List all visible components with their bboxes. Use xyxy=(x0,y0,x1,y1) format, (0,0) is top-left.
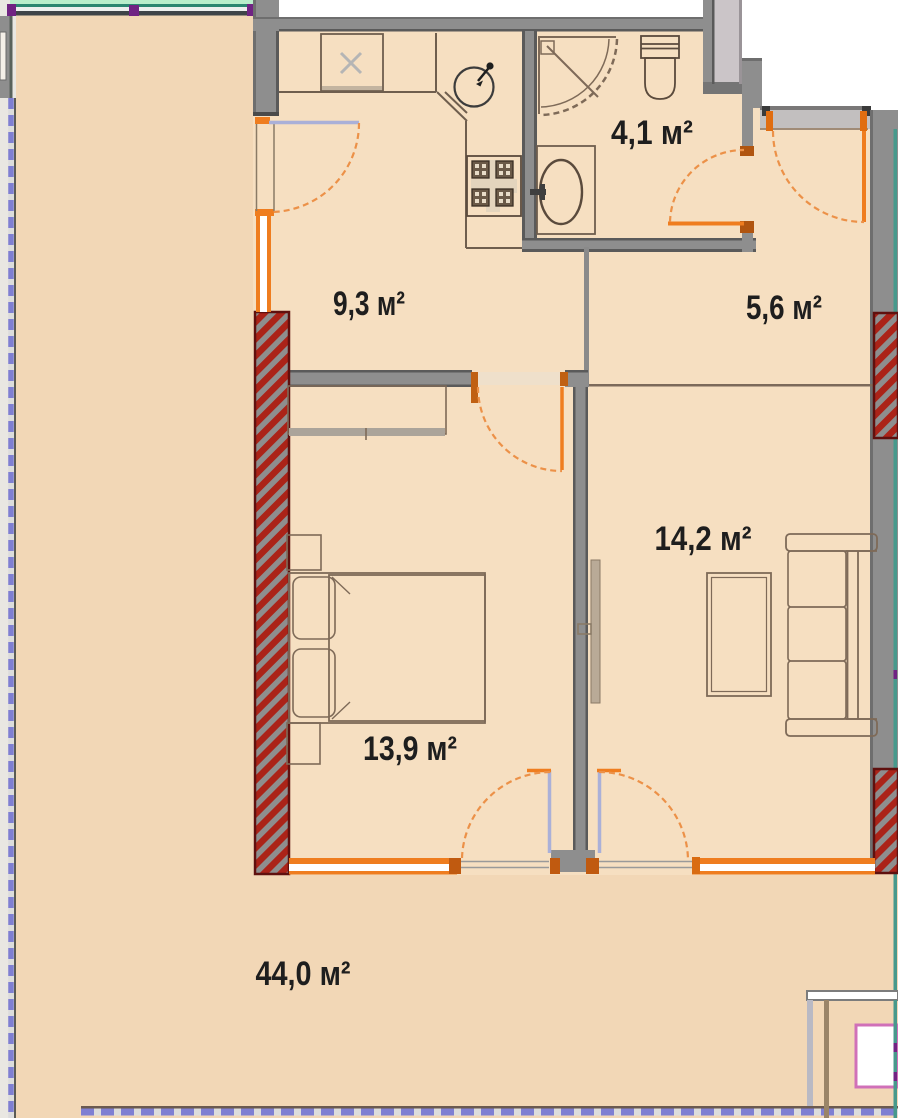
svg-text:9,3 м²: 9,3 м² xyxy=(333,285,405,323)
svg-text:14,2 м²: 14,2 м² xyxy=(655,520,752,558)
svg-text:44,0 м²: 44,0 м² xyxy=(256,955,351,993)
svg-text:13,9 м²: 13,9 м² xyxy=(363,730,457,768)
svg-text:4,1 м²: 4,1 м² xyxy=(611,114,693,152)
svg-text:5,6 м²: 5,6 м² xyxy=(746,289,822,327)
